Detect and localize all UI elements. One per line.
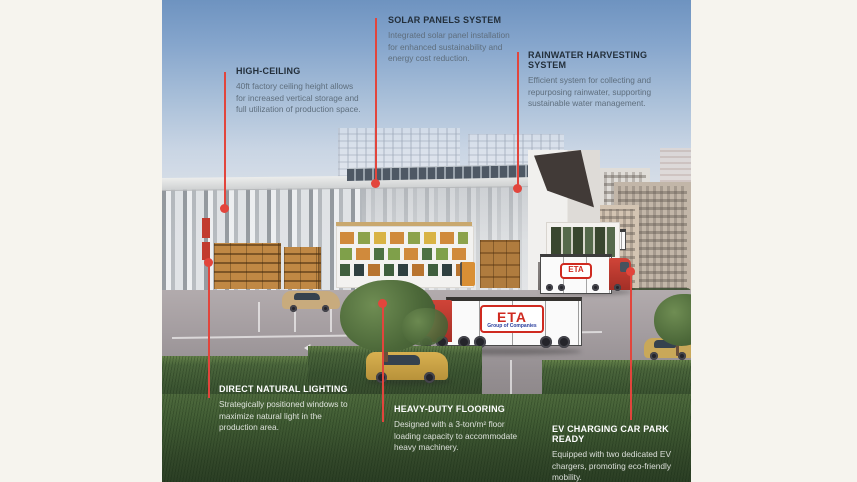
factory-render: ETA ETA Group of Companies xyxy=(162,0,691,482)
shelf-products-row xyxy=(340,232,468,244)
forklift xyxy=(460,262,475,286)
infographic-canvas: ETA ETA Group of Companies xyxy=(0,0,857,482)
wheel xyxy=(322,305,329,312)
dock-truck-logo: ETA xyxy=(560,263,592,279)
foreground-truck-logo: ETA Group of Companies xyxy=(480,305,544,333)
wheel xyxy=(546,284,553,291)
callout-title: HEAVY-DUTY FLOORING xyxy=(394,404,520,414)
callout-line-solar xyxy=(375,18,377,183)
callout-description: Designed with a 3-ton/m² floor loading c… xyxy=(394,419,520,454)
wheel xyxy=(558,336,570,348)
parking-line xyxy=(258,302,260,332)
pallet-racks xyxy=(214,243,281,289)
callout-line-natural-lighting xyxy=(208,262,210,398)
shelf-products-row xyxy=(340,248,468,260)
wheel xyxy=(290,305,297,312)
pallet-racks xyxy=(284,247,321,289)
office-interior xyxy=(551,227,615,257)
wheel xyxy=(424,372,435,383)
callout-title: SOLAR PANELS SYSTEM xyxy=(388,15,510,25)
callout-solar-panels: SOLAR PANELS SYSTEM Integrated solar pan… xyxy=(388,15,510,65)
truck-logo-text: ETA xyxy=(482,307,542,324)
callout-dot-high-ceiling xyxy=(220,204,229,213)
callout-dot-solar xyxy=(371,179,380,188)
callout-line-ev xyxy=(630,271,632,420)
wheel xyxy=(678,352,686,360)
callout-description: Efficient system for collecting and repu… xyxy=(528,75,680,110)
red-pillar-sign xyxy=(202,218,210,238)
wheel xyxy=(614,284,621,291)
callout-description: 40ft factory ceiling height allows for i… xyxy=(236,81,362,116)
wheel xyxy=(540,336,552,348)
parking-line xyxy=(510,360,512,396)
callout-flooring: HEAVY-DUTY FLOORING Designed with a 3-to… xyxy=(394,404,520,454)
wheel xyxy=(650,352,658,360)
callout-natural-lighting: DIRECT NATURAL LIGHTING Strategically po… xyxy=(219,384,357,434)
callout-title: EV CHARGING CAR PARK READY xyxy=(552,424,691,444)
dock-truck-logo-text: ETA xyxy=(568,265,583,274)
callout-title: HIGH-CEILING xyxy=(236,66,362,76)
callout-description: Strategically positioned windows to maxi… xyxy=(219,399,357,434)
callout-dot-rainwater xyxy=(513,184,522,193)
callout-title: RAINWATER HARVESTING SYSTEM xyxy=(528,50,680,70)
callout-high-ceiling: HIGH-CEILING 40ft factory ceiling height… xyxy=(236,66,362,116)
callout-description: Integrated solar panel installation for … xyxy=(388,30,510,65)
wooden-crates xyxy=(480,240,520,288)
product-shelving xyxy=(336,226,474,288)
callout-line-high-ceiling xyxy=(224,72,226,209)
car-glass xyxy=(294,293,320,300)
callout-line-rainwater xyxy=(517,52,519,188)
truck-logo-subtext: Group of Companies xyxy=(482,324,542,329)
callout-ev-charging: EV CHARGING CAR PARK READY Equipped with… xyxy=(552,424,691,482)
callout-rainwater: RAINWATER HARVESTING SYSTEM Efficient sy… xyxy=(528,50,680,110)
shelf-products-row xyxy=(340,264,468,276)
callout-description: Equipped with two dedicated EV chargers,… xyxy=(552,449,691,482)
callout-line-flooring xyxy=(382,303,384,422)
callout-title: DIRECT NATURAL LIGHTING xyxy=(219,384,357,394)
wheel xyxy=(558,284,565,291)
wheel xyxy=(592,284,599,291)
